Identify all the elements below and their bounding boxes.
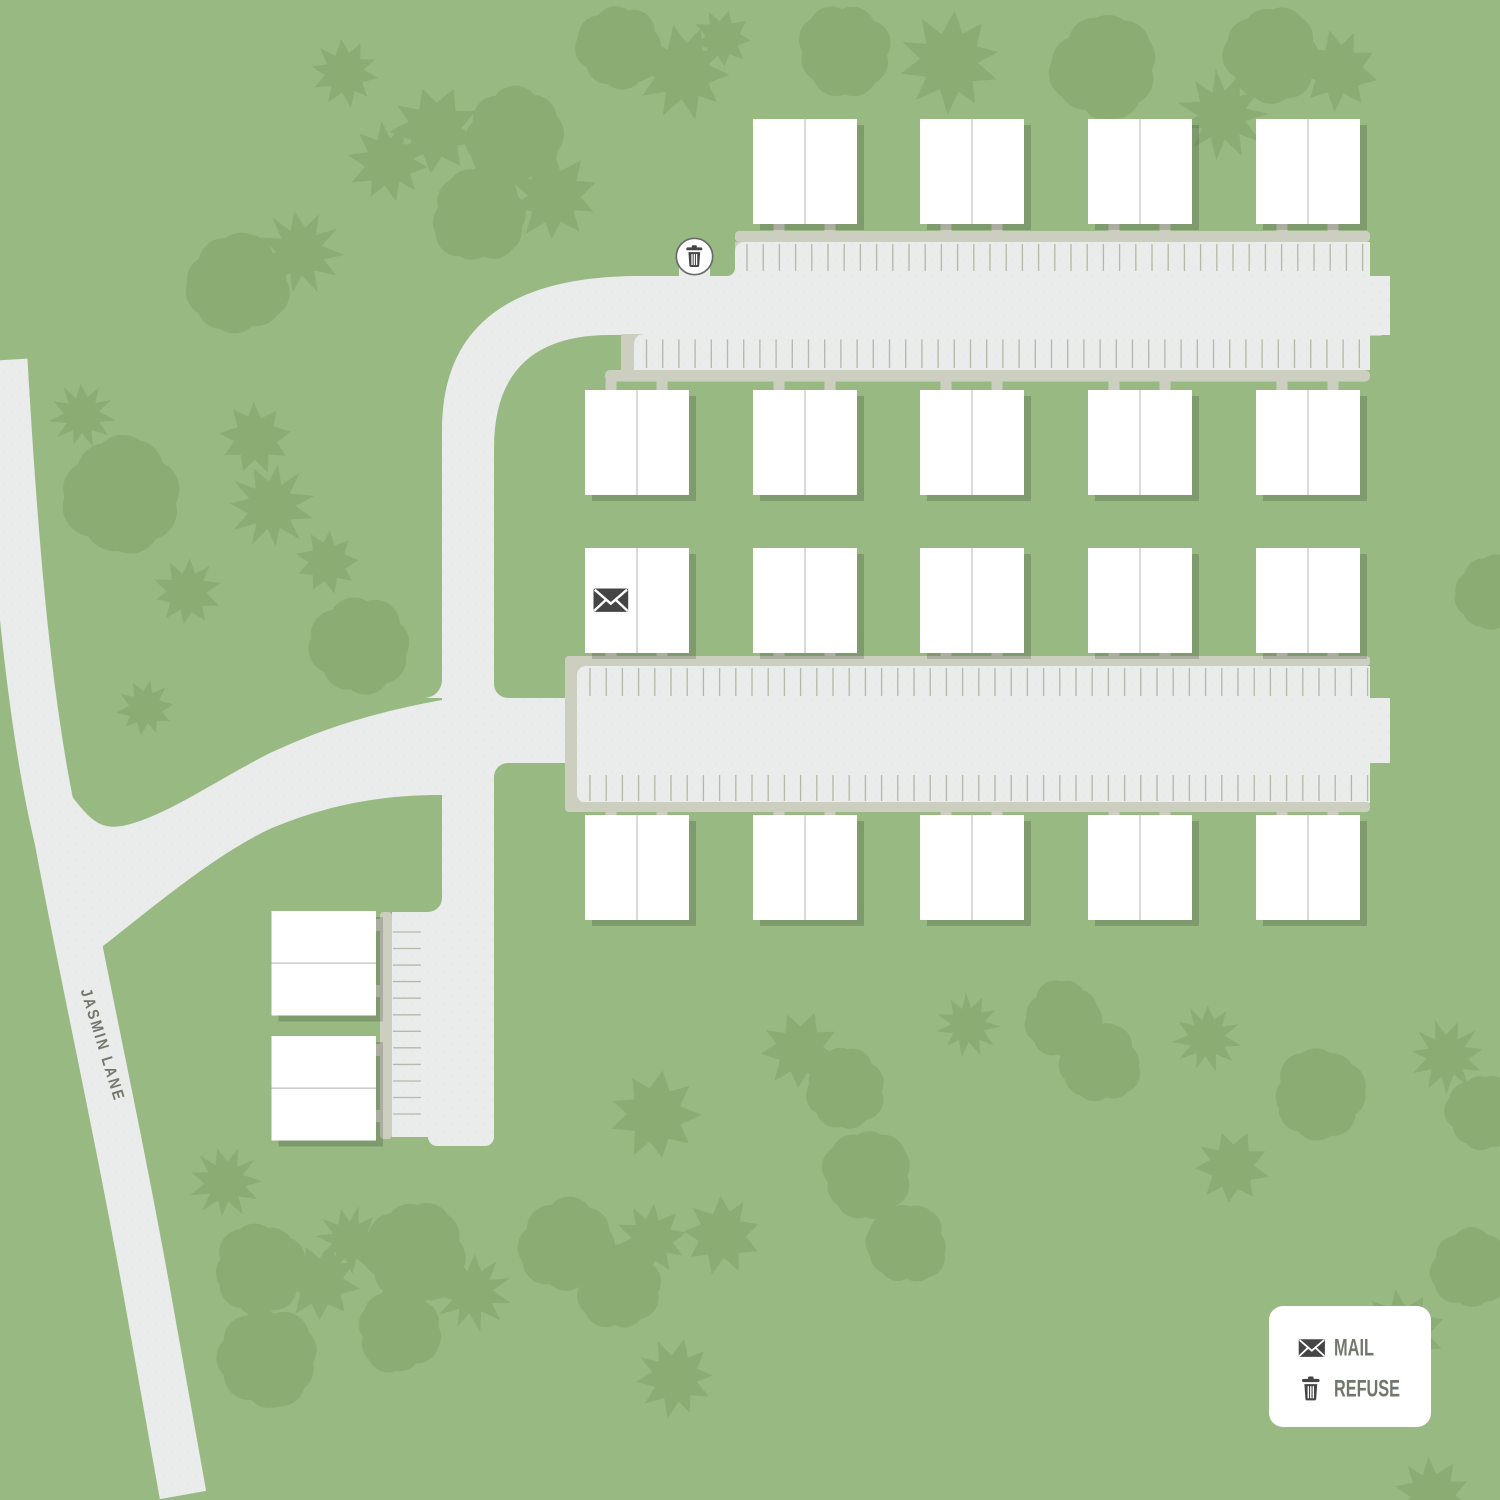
svg-text:MAIL: MAIL — [1334, 1335, 1374, 1362]
svg-text:REFUSE: REFUSE — [1334, 1376, 1400, 1403]
